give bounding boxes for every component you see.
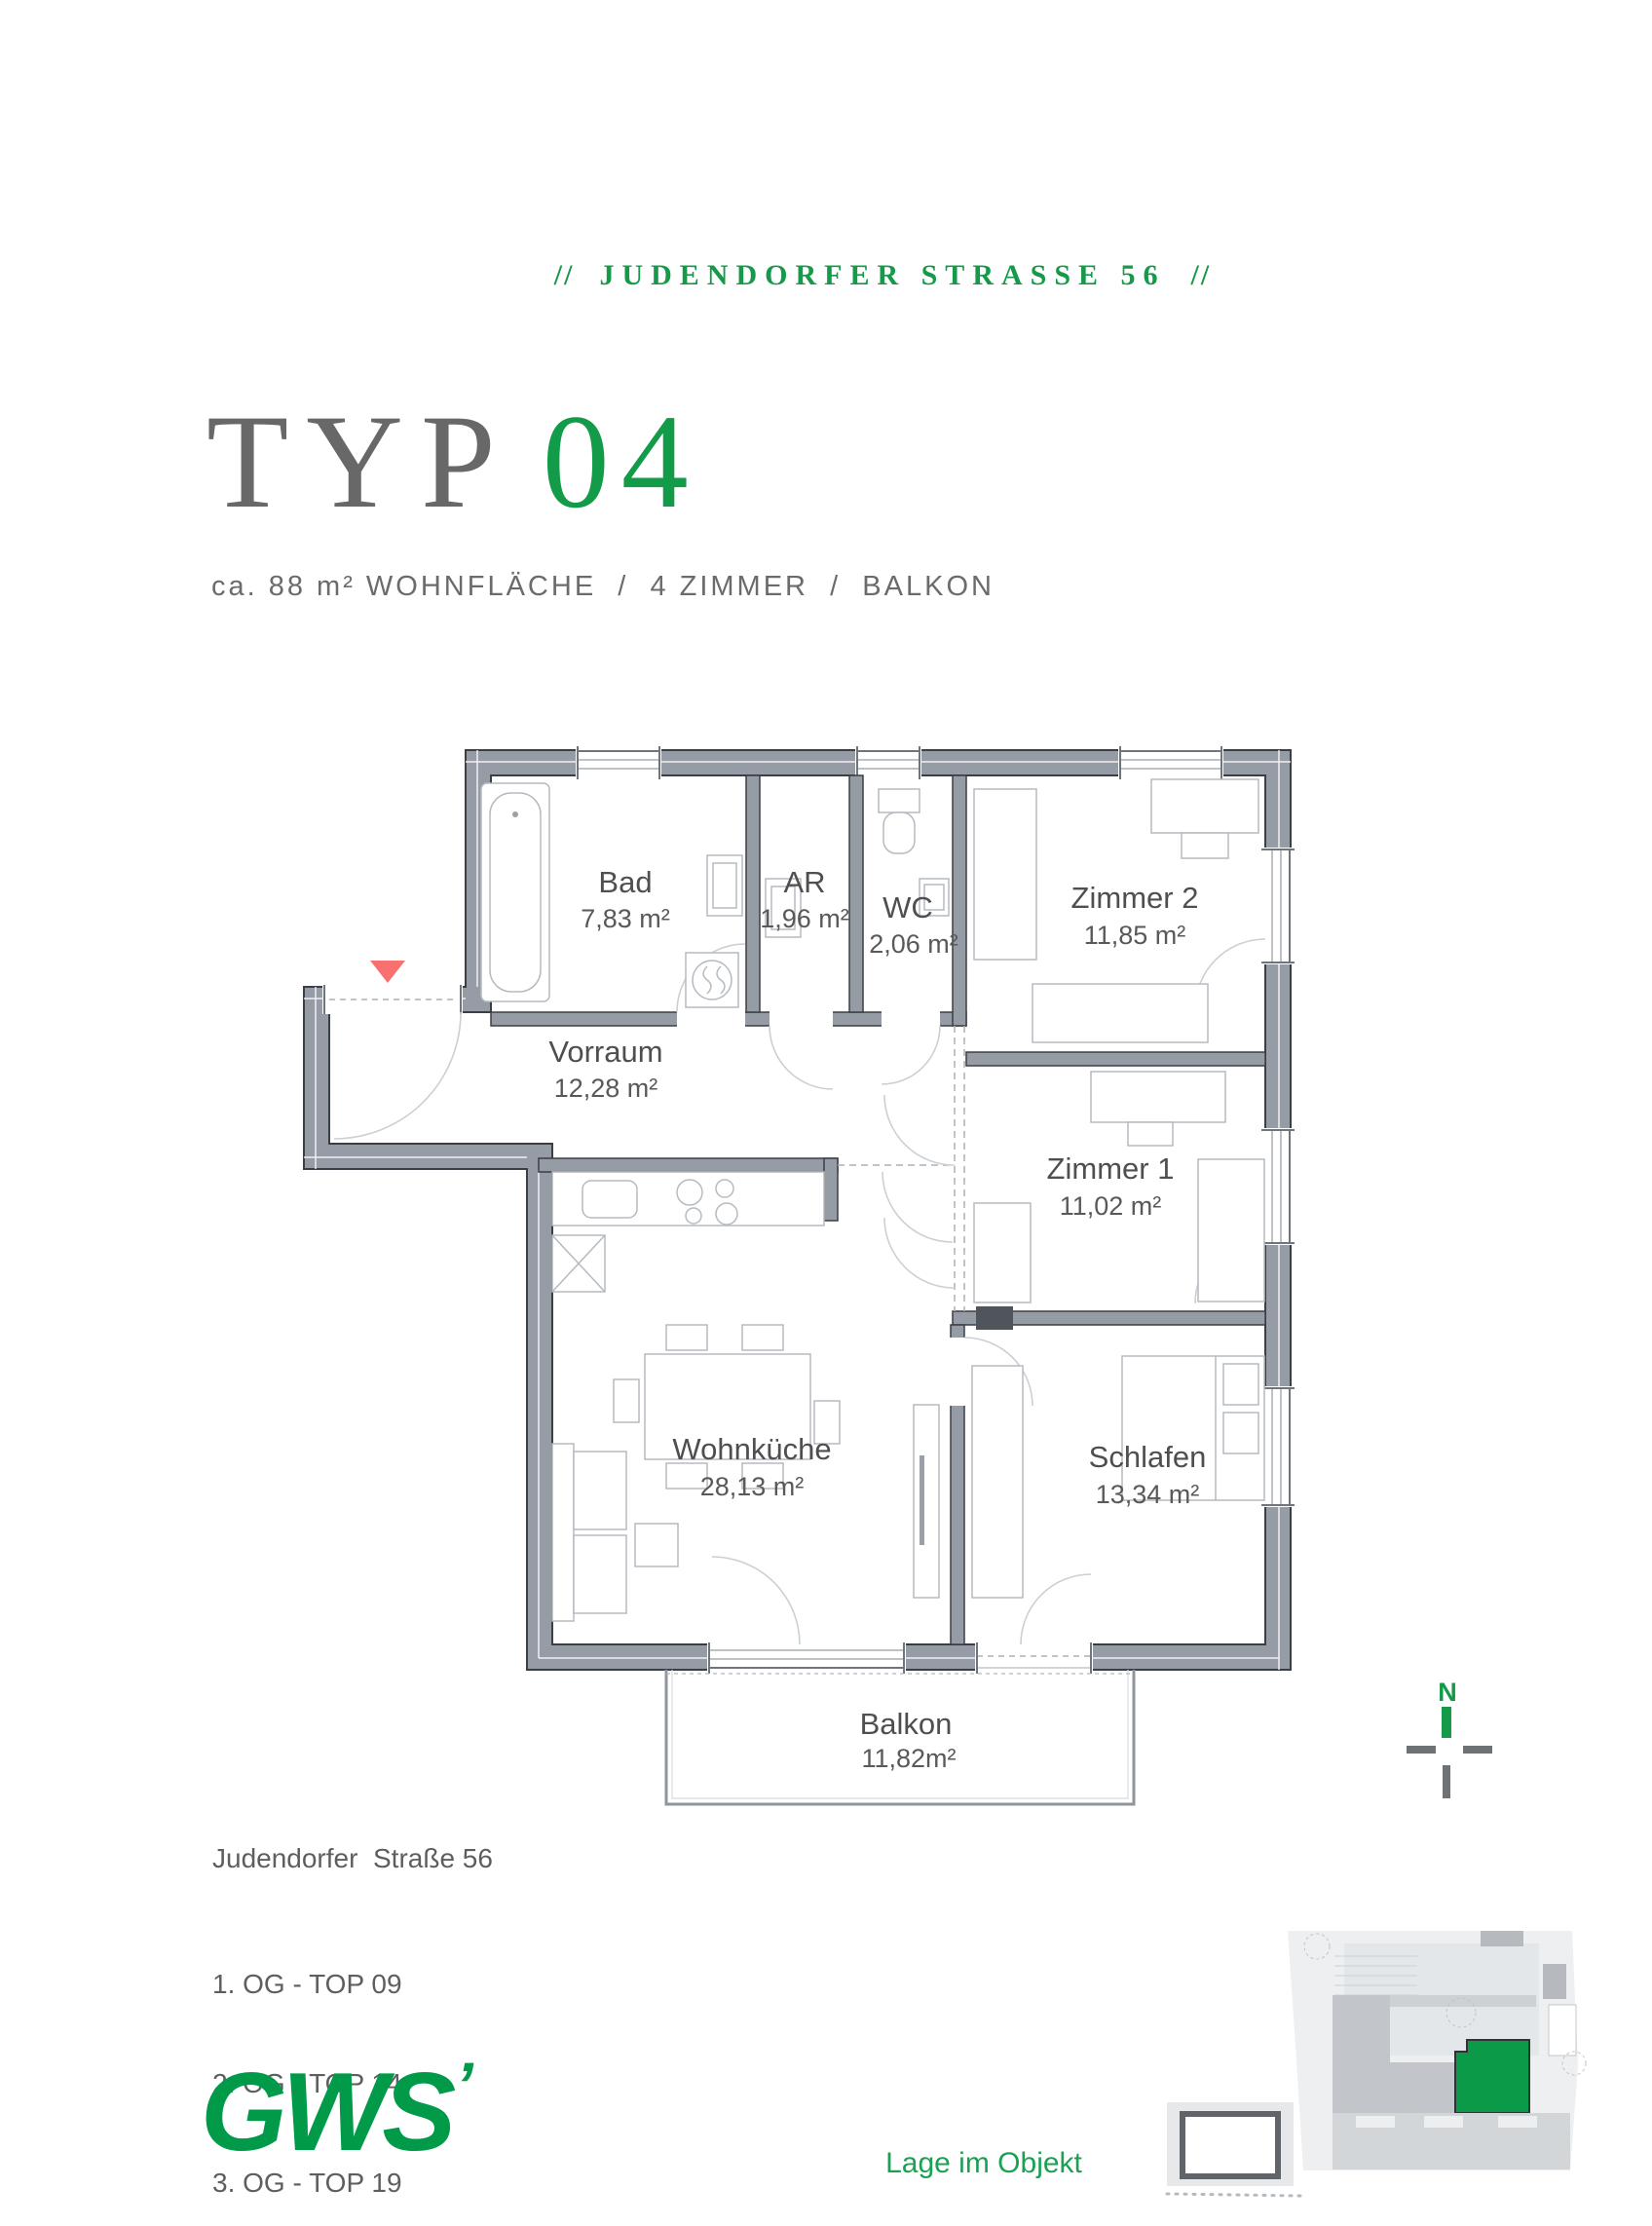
room-area-vorraum: 12,28 m² — [554, 1074, 658, 1103]
address-line: Judendorfer Straße 56 — [212, 1843, 493, 1874]
room-area-wc: 2,06 m² — [869, 929, 958, 959]
page-subtitle: ca. 88 m² WOHNFLÄCHE / 4 ZIMMER / BALKON — [211, 571, 995, 603]
room-label-zimmer1: Zimmer 1 — [1047, 1151, 1175, 1186]
room-label-ar: AR — [783, 865, 825, 899]
room-area-bad: 7,83 m² — [581, 904, 670, 933]
siteplan-highlighted-unit — [1455, 2040, 1529, 2113]
toilet-icon — [879, 789, 920, 812]
room-label-bad: Bad — [598, 865, 652, 899]
room-label-zimmer2: Zimmer 2 — [1071, 881, 1199, 915]
sofa-icon — [552, 1444, 574, 1621]
room-label-schlafen: Schlafen — [1089, 1440, 1207, 1474]
room-area-zimmer2: 11,85 m² — [1084, 921, 1186, 950]
page-title: TYP04 — [206, 388, 700, 536]
room-area-balkon: 11,82m² — [861, 1744, 956, 1773]
sideboard-icon — [1032, 984, 1208, 1042]
windows-bottom — [707, 1642, 1093, 1674]
room-label-wc: WC — [882, 890, 933, 924]
room-area-ar: 1,96 m² — [760, 904, 849, 933]
compass-cross — [1407, 1746, 1492, 1798]
tagline-slashes-right: // — [1191, 259, 1212, 291]
gws-logo: GWS’ — [201, 2057, 473, 2169]
tv-board-icon — [914, 1405, 939, 1598]
room-label-wohnkueche: Wohnküche — [672, 1432, 831, 1466]
kitchen-sink-icon — [582, 1181, 637, 1218]
windows-right — [1261, 848, 1295, 1507]
siteplan-map — [1154, 1895, 1602, 2202]
room-area-wohnkueche: 28,13 m² — [700, 1472, 805, 1501]
entrance-marker-icon — [370, 961, 405, 983]
desk-icon — [1091, 1072, 1225, 1122]
room-label-vorraum: Vorraum — [548, 1035, 662, 1069]
wardrobe-icon — [974, 789, 1036, 960]
room-area-zimmer1: 11,02 m² — [1060, 1191, 1162, 1221]
siteplan-side-building — [1183, 2114, 1278, 2176]
tagline-street: JUDENDORFER STRASSE 56 — [599, 259, 1165, 291]
title-prefix: TYP — [206, 387, 513, 536]
bed-icon — [1198, 1159, 1264, 1302]
siteplan-caption: Lage im Objekt — [857, 2147, 1110, 2180]
cooktop-icon — [677, 1180, 702, 1205]
wardrobe-icon — [972, 1366, 1023, 1598]
title-number: 04 — [543, 387, 700, 536]
gws-logo-text: GWS — [201, 2051, 451, 2174]
desk-icon — [1151, 779, 1258, 833]
tagline: //JUDENDORFER STRASSE 56// — [0, 259, 1652, 292]
door-arcs — [334, 939, 1265, 1644]
floorplan-page: //JUDENDORFER STRASSE 56// TYP04 ca. 88 … — [0, 0, 1652, 2226]
unit-item: 1. OG - TOP 09 — [212, 1968, 402, 2001]
floorplan-drawing: Bad 7,83 m² AR 1,96 m² WC 2,06 m² Zimmer… — [287, 731, 1320, 1831]
compass: N — [1388, 1668, 1505, 1804]
entrance — [322, 961, 463, 1014]
room-label-balkon: Balkon — [860, 1707, 953, 1741]
compass-north-needle — [1442, 1707, 1451, 1738]
wall-pier — [976, 1306, 1013, 1330]
wardrobe-icon — [974, 1203, 1031, 1302]
compass-north-label: N — [1438, 1678, 1457, 1707]
dashed-boundaries — [838, 1026, 964, 1311]
gws-logo-mark: ’ — [455, 2049, 472, 2121]
tagline-slashes-left: // — [554, 259, 575, 291]
room-area-schlafen: 13,34 m² — [1096, 1480, 1200, 1509]
